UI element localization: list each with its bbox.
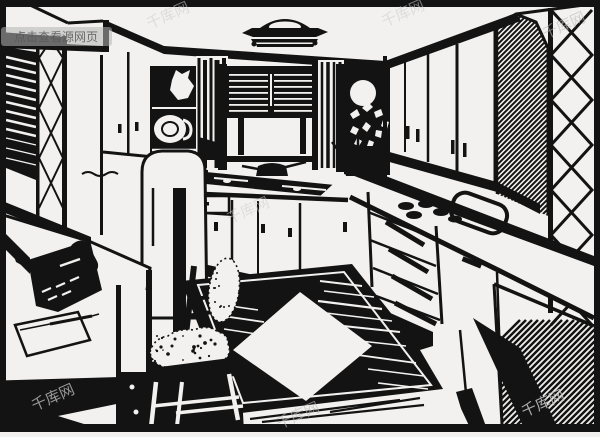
svg-text:点击查看源网页: 点击查看源网页	[14, 30, 98, 44]
